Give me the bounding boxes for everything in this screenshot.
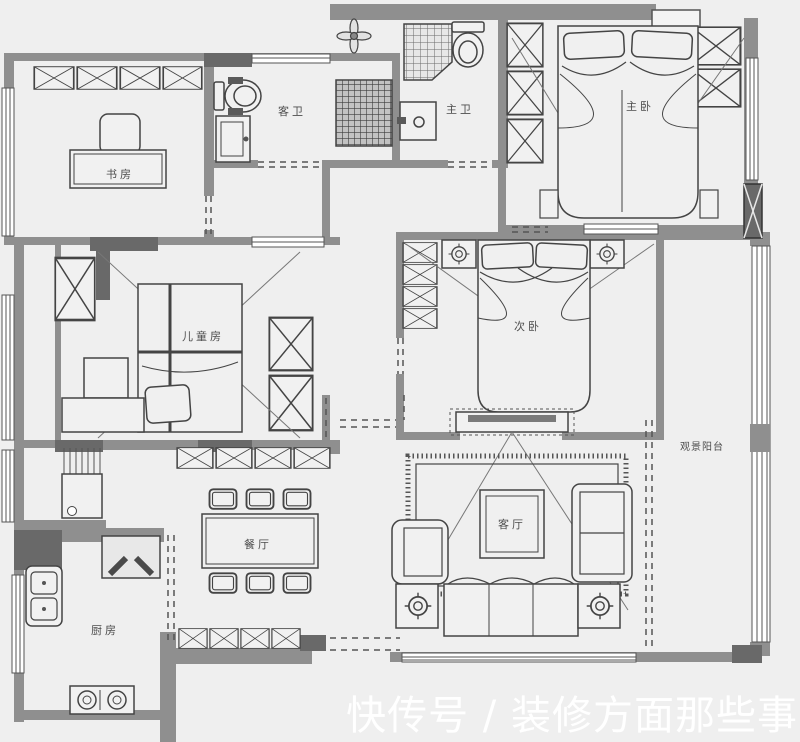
plant-icon bbox=[337, 19, 371, 53]
nightstand-icon bbox=[540, 190, 558, 218]
loveseat-icon bbox=[572, 484, 632, 582]
bed-icon bbox=[138, 284, 242, 432]
tv-cabinet bbox=[450, 409, 574, 435]
nightstand-icon bbox=[700, 190, 718, 218]
room-label-master-bedroom: 主卧 bbox=[626, 100, 654, 113]
shower-tile-icon bbox=[404, 24, 452, 80]
toilet-icon bbox=[214, 77, 261, 115]
floor-plan: 书房 客卫 主卫 主卧 次卧 儿童房 餐厅 客厅 厨房 观景阳台 快传号 / 装… bbox=[0, 0, 800, 742]
washing-machine-icon bbox=[216, 116, 250, 162]
sink-icon bbox=[26, 566, 62, 626]
bed-icon bbox=[558, 26, 698, 218]
room-label-study: 书房 bbox=[106, 168, 134, 181]
room-label-second-bedroom: 次卧 bbox=[514, 319, 542, 333]
room-label-living: 客厅 bbox=[498, 517, 526, 531]
armchair-icon bbox=[392, 520, 448, 584]
cabinet-icon bbox=[62, 398, 144, 432]
desk-icon bbox=[84, 358, 128, 398]
room-living bbox=[392, 432, 632, 636]
watermark-text: 快传号 / 装修方面那些事 bbox=[346, 694, 798, 738]
stove-icon bbox=[70, 686, 134, 714]
shower-tile-icon bbox=[336, 80, 392, 146]
room-label-guest-bath: 客卫 bbox=[278, 104, 306, 118]
utility-area bbox=[62, 448, 102, 518]
room-label-kitchen: 厨房 bbox=[91, 624, 119, 637]
room-label-dining: 餐厅 bbox=[244, 537, 272, 551]
shaft-icon bbox=[744, 184, 762, 238]
room-label-master-bath: 主卫 bbox=[446, 103, 474, 116]
sink-icon bbox=[397, 102, 436, 140]
chair-icon bbox=[100, 114, 140, 154]
fridge-icon bbox=[102, 536, 160, 578]
room-guest-bath bbox=[214, 19, 392, 162]
room-master-bath bbox=[397, 22, 484, 140]
room-label-balcony: 观景阳台 bbox=[680, 440, 724, 453]
room-label-kids-room: 儿童房 bbox=[182, 329, 224, 343]
toilet-icon bbox=[452, 22, 484, 67]
sofa-icon bbox=[444, 578, 578, 636]
tv-icon bbox=[468, 415, 556, 422]
